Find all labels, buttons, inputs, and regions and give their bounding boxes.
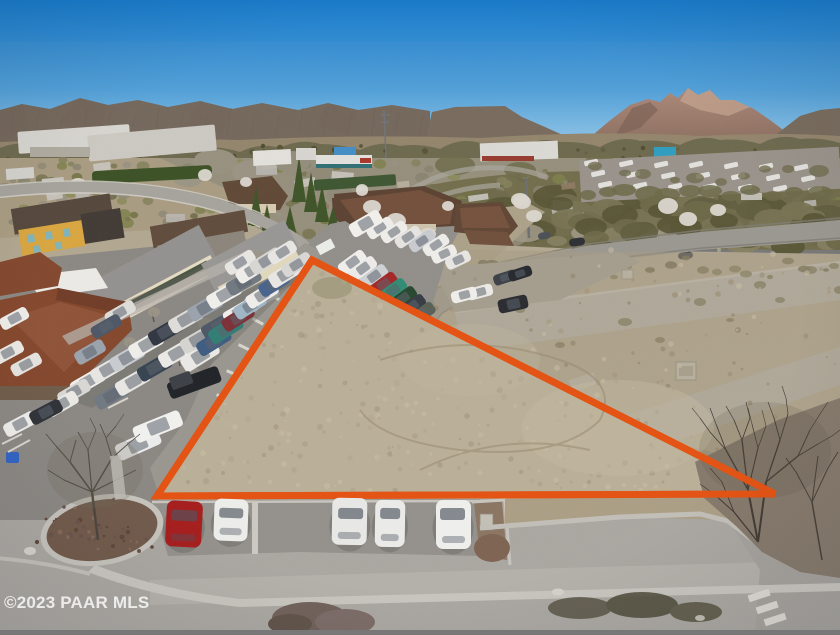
svg-text:©2023 PAAR MLS: ©2023 PAAR MLS (4, 593, 149, 612)
